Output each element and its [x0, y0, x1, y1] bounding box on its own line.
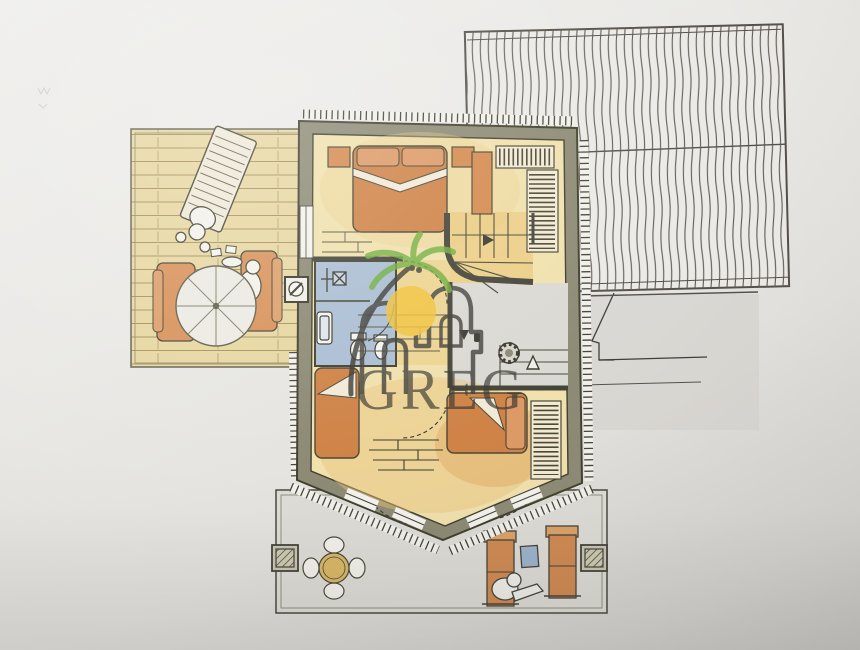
building [285, 114, 592, 551]
watermark-text: GREG [356, 357, 526, 422]
pillow [402, 148, 444, 166]
floor-plan-drawing: GREG [0, 0, 860, 650]
nightstand-right [452, 147, 474, 167]
parasol-icon [176, 266, 256, 346]
side-table [520, 545, 538, 567]
planter-left [272, 545, 298, 571]
side-deck [131, 125, 305, 367]
wardrobe-top [496, 146, 554, 168]
nightstand-left [328, 147, 350, 167]
rear-landing [583, 292, 759, 430]
washbasin [317, 312, 332, 344]
pillow [357, 148, 399, 166]
dresser [472, 152, 492, 214]
wardrobe-lower [531, 401, 561, 479]
chimney [285, 277, 308, 302]
planter-right [581, 545, 607, 571]
pencil-marks [38, 88, 50, 108]
window-to-deck [300, 206, 313, 258]
sun-icon [386, 286, 436, 336]
deck-chair-right [544, 526, 581, 598]
floor-plan-photo: GREG [0, 0, 860, 650]
double-bed [353, 146, 447, 232]
